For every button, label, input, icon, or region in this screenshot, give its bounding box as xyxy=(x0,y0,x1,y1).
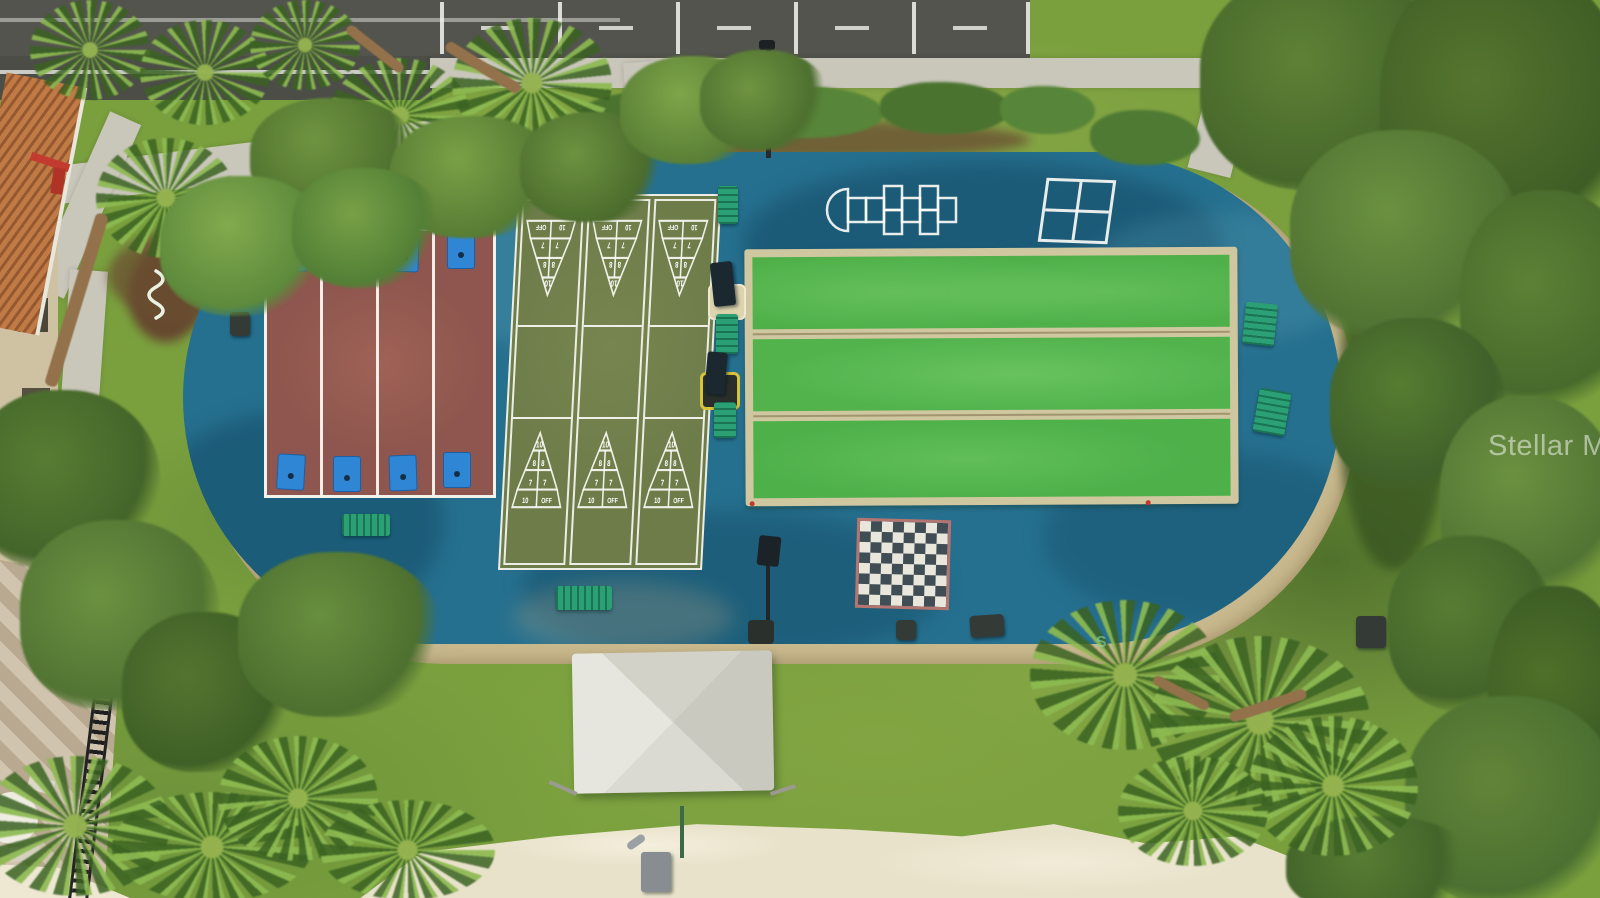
light-pole-head xyxy=(759,40,775,50)
svg-text:7: 7 xyxy=(529,478,533,488)
scoring-triangle: 10 8 8 7 7 10 OFF xyxy=(586,215,644,299)
bocce-corner-marker xyxy=(750,501,755,506)
svg-text:OFF: OFF xyxy=(541,498,552,506)
svg-text:8: 8 xyxy=(617,260,621,270)
trash-bin xyxy=(896,620,916,640)
svg-text:7: 7 xyxy=(687,240,691,250)
svg-text:10: 10 xyxy=(522,498,529,506)
svg-text:7: 7 xyxy=(543,478,547,488)
svg-text:10: 10 xyxy=(654,498,661,506)
svg-text:7: 7 xyxy=(661,478,665,488)
svg-text:8: 8 xyxy=(664,458,668,468)
bench xyxy=(556,586,612,610)
svg-text:8: 8 xyxy=(598,458,602,468)
svg-text:8: 8 xyxy=(551,260,555,270)
svg-text:7: 7 xyxy=(607,240,611,250)
lamp-post-head xyxy=(756,535,781,567)
hopscotch-cell xyxy=(938,198,956,222)
drinking-fountain xyxy=(641,852,671,892)
shuffleboard-scoring-triangle-near: 10 8 8 7 7 10 OFF xyxy=(641,429,699,513)
cornhole-board xyxy=(447,233,475,269)
bench xyxy=(714,402,736,438)
parking-line xyxy=(794,2,798,54)
scoring-triangle: 10 8 8 7 7 10 OFF xyxy=(641,429,699,513)
cornhole-hole xyxy=(344,475,350,481)
scoring-triangle: 10 8 8 7 7 10 OFF xyxy=(575,429,633,513)
parking-hash xyxy=(835,26,869,30)
wave-rack-path xyxy=(149,271,163,318)
palm-tree xyxy=(1118,756,1268,866)
green-pole xyxy=(680,806,684,858)
shuffleboard-line xyxy=(513,417,571,419)
cornhole-lane-line xyxy=(432,231,435,495)
shuffleboard-line xyxy=(645,417,703,419)
svg-text:7: 7 xyxy=(675,478,679,488)
svg-text:7: 7 xyxy=(621,240,625,250)
bench xyxy=(718,186,738,224)
svg-text:10: 10 xyxy=(610,278,618,288)
cornhole-hole xyxy=(458,252,464,258)
bocce-rail-shadow xyxy=(753,331,1230,335)
svg-text:10: 10 xyxy=(625,222,632,230)
shuffleboard-cue-rack xyxy=(704,351,728,395)
hopscotch-cell xyxy=(884,210,902,234)
scoring-triangle: 10 8 8 7 7 10 OFF xyxy=(520,215,578,299)
svg-text:8: 8 xyxy=(541,458,545,468)
svg-text:8: 8 xyxy=(675,260,679,270)
hopscotch-court xyxy=(824,184,958,236)
svg-text:OFF: OFF xyxy=(667,222,678,230)
shuffleboard-line xyxy=(584,325,642,327)
parking-hash xyxy=(717,26,751,30)
shade-sail xyxy=(572,650,774,793)
shuffleboard-line xyxy=(650,325,708,327)
svg-text:8: 8 xyxy=(609,260,613,270)
svg-text:OFF: OFF xyxy=(601,222,612,230)
svg-text:8: 8 xyxy=(607,458,611,468)
cornhole-board xyxy=(276,453,306,490)
svg-text:OFF: OFF xyxy=(607,498,618,506)
svg-text:7: 7 xyxy=(609,478,613,488)
checkerboard xyxy=(855,518,951,610)
shuffleboard-scoring-triangle-near: 10 8 8 7 7 10 OFF xyxy=(575,429,633,513)
storage-box xyxy=(969,614,1004,638)
cornhole-board xyxy=(443,452,471,488)
scoring-triangle: 10 8 8 7 7 10 OFF xyxy=(652,215,710,299)
svg-text:OFF: OFF xyxy=(535,222,546,230)
lamp-post-base xyxy=(748,620,774,644)
bocce-lane xyxy=(753,419,1230,498)
svg-text:10: 10 xyxy=(668,440,676,450)
bench xyxy=(1242,301,1278,346)
bocce-rail-shadow xyxy=(753,413,1230,417)
shuffleboard-scoring-triangle-far: 10 8 8 7 7 10 OFF xyxy=(586,215,644,299)
shuffleboard-court-pad: 10 8 8 7 7 10 OFF 10 8 8 7 7 10 OFF xyxy=(498,194,722,570)
cornhole-board xyxy=(388,455,417,492)
parking-line xyxy=(1026,2,1030,54)
palm-tree xyxy=(250,0,360,90)
shuffleboard-scoring-triangle-far: 10 8 8 7 7 10 OFF xyxy=(520,215,578,299)
svg-text:10: 10 xyxy=(536,440,544,450)
svg-text:7: 7 xyxy=(673,240,677,250)
shuffleboard-line xyxy=(579,417,637,419)
four-square-court xyxy=(1038,178,1117,244)
hopscotch-dome xyxy=(827,189,848,231)
court-wear-patch xyxy=(513,582,733,644)
parking-hash xyxy=(953,26,987,30)
shuffleboard-line xyxy=(518,325,576,327)
palm-tree xyxy=(1248,716,1418,856)
svg-text:10: 10 xyxy=(691,222,698,230)
svg-text:7: 7 xyxy=(555,240,559,250)
cornhole-hole xyxy=(454,471,460,477)
watermark-text: Stellar MLS xyxy=(1488,430,1600,463)
parking-line xyxy=(676,2,680,54)
cornhole-hole xyxy=(288,473,294,479)
hedge xyxy=(1000,86,1095,134)
palm-tree xyxy=(30,0,150,100)
cornhole-board xyxy=(333,456,361,492)
svg-text:8: 8 xyxy=(683,260,687,270)
svg-text:10: 10 xyxy=(588,498,595,506)
svg-text:10: 10 xyxy=(676,278,684,288)
hopscotch-cell xyxy=(902,198,920,222)
shuffleboard-scoring-triangle-far: 10 8 8 7 7 10 OFF xyxy=(652,215,710,299)
hedge xyxy=(880,82,1010,134)
svg-text:8: 8 xyxy=(532,458,536,468)
bocce-lane xyxy=(752,255,1229,329)
bocce-corner-marker xyxy=(1146,500,1151,505)
bocce-court-frame xyxy=(744,247,1238,507)
bocce-lane xyxy=(753,337,1230,411)
aerial-photo-scene: 10 8 8 7 7 10 OFF 10 8 8 7 7 10 OFF xyxy=(0,0,1600,898)
hopscotch-cell xyxy=(848,198,866,222)
cornhole-hole xyxy=(400,474,406,480)
shuffleboard-scoring-triangle-near: 10 8 8 7 7 10 OFF xyxy=(509,429,567,513)
svg-text:10: 10 xyxy=(602,440,610,450)
bench xyxy=(342,514,390,536)
hopscotch-cell xyxy=(866,198,884,222)
hopscotch-cell xyxy=(884,186,902,210)
hedge xyxy=(1090,110,1200,165)
watermark-logo: S xyxy=(1096,634,1107,652)
bench xyxy=(716,314,738,354)
svg-text:7: 7 xyxy=(595,478,599,488)
parking-hash xyxy=(599,26,633,30)
svg-text:10: 10 xyxy=(559,222,566,230)
svg-text:10: 10 xyxy=(544,278,552,288)
shuffleboard-cue-rack xyxy=(710,261,736,307)
hopscotch-cell xyxy=(920,186,938,210)
svg-text:8: 8 xyxy=(673,458,677,468)
storage-box xyxy=(1356,616,1386,648)
svg-text:8: 8 xyxy=(543,260,547,270)
parking-line xyxy=(440,2,444,54)
svg-text:OFF: OFF xyxy=(673,498,684,506)
svg-text:7: 7 xyxy=(541,240,545,250)
parking-line xyxy=(912,2,916,54)
palm-tree xyxy=(320,800,495,898)
hopscotch-cell xyxy=(920,210,938,234)
scoring-triangle: 10 8 8 7 7 10 OFF xyxy=(509,429,567,513)
